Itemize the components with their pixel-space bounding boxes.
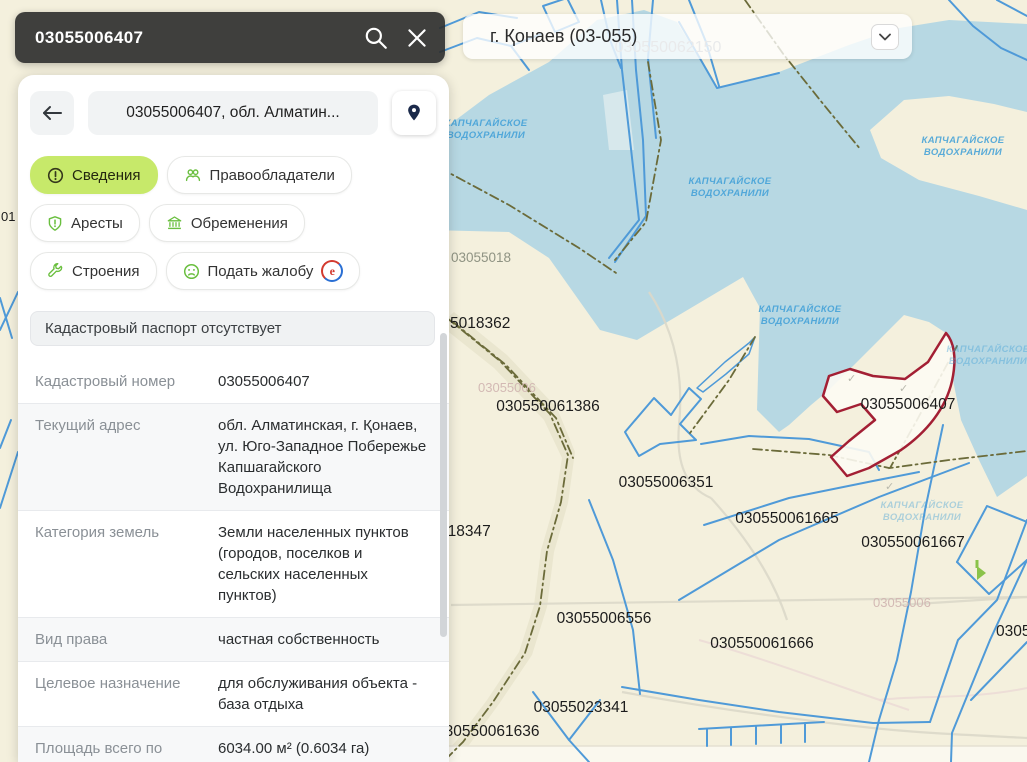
bank-icon: [166, 215, 183, 231]
map-bottom-strip: [440, 746, 1027, 762]
map-parcel-label: 03055006: [873, 595, 931, 610]
detail-value: обл. Алматинская, г. Қонаев, ул. Юго-Зап…: [218, 415, 427, 499]
tab-shield[interactable]: Аресты: [30, 204, 140, 242]
map-parcel-label: 030550061666: [710, 635, 813, 652]
sad-face-icon: [183, 263, 200, 280]
checkmark-icon: ✓: [885, 480, 894, 493]
detail-row: Текущий адресобл. Алматинская, г. Қонаев…: [18, 403, 449, 510]
wrench-icon: [47, 263, 64, 280]
detail-row: Кадастровый номер03055006407: [18, 360, 449, 403]
detail-value: частная собственность: [218, 629, 427, 650]
tab-info-alert[interactable]: Сведения: [30, 156, 158, 194]
map-pin-icon: [404, 102, 424, 124]
panel-tabs: СведенияПравообладателиАрестыОбременения…: [30, 156, 435, 290]
tab-label: Правообладатели: [210, 167, 335, 184]
map-parcel-label: 0305: [996, 623, 1027, 640]
map-parcel-label: 03055006351: [619, 474, 714, 491]
checkmark-icon: ✓: [847, 372, 856, 385]
map-parcel-label: 030550061665: [735, 510, 838, 527]
tab-sad-face[interactable]: Подать жалобуe: [166, 252, 361, 290]
detail-row: Категория земельЗемли населенных пунктов…: [18, 510, 449, 617]
region-dropdown-value: г. Қонаев (03-055): [490, 26, 871, 47]
shield-icon: [47, 215, 63, 232]
detail-row: Площадь всего по документам6034.00 м² (0…: [18, 726, 449, 762]
map-parcel-label: 030550061386: [496, 398, 599, 415]
panel-header: 03055006407, обл. Алматин...: [30, 91, 436, 135]
close-icon[interactable]: [404, 25, 430, 51]
detail-label: Вид права: [35, 629, 218, 650]
tab-wrench[interactable]: Строения: [30, 252, 157, 290]
info-alert-icon: [47, 167, 64, 184]
region-dropdown[interactable]: г. Қонаев (03-055): [463, 14, 912, 59]
detail-label: Текущий адрес: [35, 415, 218, 499]
map-parcel-label: 03055006556: [557, 610, 652, 627]
map-parcel-label: 030550061636: [436, 723, 539, 740]
search-bar[interactable]: 03055006407: [15, 12, 445, 63]
locate-button[interactable]: [392, 91, 436, 135]
search-icon[interactable]: [363, 25, 389, 51]
detail-value: Земли населенных пунктов (городов, посел…: [218, 522, 427, 606]
tab-bank[interactable]: Обременения: [149, 204, 305, 242]
tab-people[interactable]: Правообладатели: [167, 156, 352, 194]
detail-row: Вид правачастная собственность: [18, 617, 449, 661]
parcel-title-field[interactable]: 03055006407, обл. Алматин...: [88, 91, 378, 135]
map-parcel-label: 03055006407: [861, 396, 956, 413]
map-parcel-label: 03055023341: [534, 699, 629, 716]
map-parcel-label: 01: [1, 209, 15, 224]
map-parcel-label: 5018362: [450, 315, 510, 332]
detail-value: 03055006407: [218, 371, 427, 392]
detail-label: Категория земель: [35, 522, 218, 606]
parcel-details-list: Кадастровый номер03055006407Текущий адре…: [18, 360, 449, 762]
map-parcel-label: 030550061667: [861, 534, 964, 551]
detail-value: для обслуживания объекта - база отдыха: [218, 673, 427, 715]
parcel-info-panel: 03055006407, обл. Алматин... СведенияПра…: [18, 75, 449, 762]
checkmark-icon: ✓: [899, 382, 908, 395]
detail-label: Кадастровый номер: [35, 371, 218, 392]
map-parcel-label: 03055018: [451, 250, 511, 265]
detail-label: Целевое назначение: [35, 673, 218, 715]
back-button[interactable]: [30, 91, 74, 135]
detail-label: Площадь всего по документам: [35, 738, 218, 762]
region-dropdown-button[interactable]: [871, 24, 899, 50]
tab-label: Обременения: [191, 215, 288, 232]
detail-row: Целевое назначениедля обслуживания объек…: [18, 661, 449, 726]
tab-label: Аресты: [71, 215, 123, 232]
tab-label: Подать жалобу: [208, 263, 314, 280]
back-arrow-icon: [41, 104, 63, 122]
chevron-down-icon: [879, 33, 891, 41]
detail-value: 6034.00 м² (0.6034 га): [218, 738, 427, 762]
app-root: { "search_bar": { "value": "03055006407"…: [0, 0, 1027, 762]
tab-label: Сведения: [72, 167, 141, 184]
panel-scrollbar[interactable]: [440, 333, 447, 637]
people-icon: [184, 167, 202, 183]
cadastral-passport-notice: Кадастровый паспорт отсутствует: [30, 311, 435, 346]
search-input[interactable]: 03055006407: [35, 28, 363, 48]
map-parcel-label: 03055006: [478, 380, 536, 395]
eotinish-logo: e: [321, 260, 343, 282]
tab-label: Строения: [72, 263, 140, 280]
